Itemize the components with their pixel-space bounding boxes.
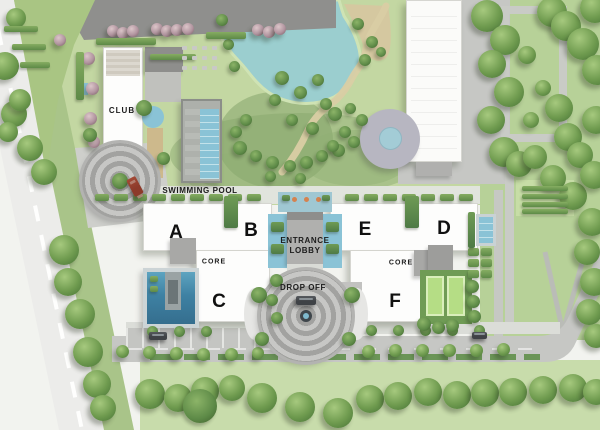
tower-b-label: B bbox=[244, 220, 258, 242]
car bbox=[296, 296, 316, 305]
vehicle-layer bbox=[0, 0, 600, 430]
tower-e-label: E bbox=[359, 219, 372, 241]
car-red bbox=[126, 176, 144, 197]
entrance-lobby-line1: ENTRANCE bbox=[280, 236, 329, 246]
tower-a-label: A bbox=[169, 222, 183, 244]
drop-off-label: DROP OFF bbox=[280, 283, 326, 293]
site-plan: CLUB SWIMMING POOL ENTRANCE LOBBY DROP O… bbox=[0, 0, 600, 430]
entrance-lobby-label: ENTRANCE LOBBY bbox=[280, 236, 329, 256]
entrance-lobby-line2: LOBBY bbox=[280, 246, 329, 256]
tower-c-label: C bbox=[212, 291, 226, 313]
tower-f-label: F bbox=[389, 291, 401, 313]
swimming-pool-label: SWIMMING POOL bbox=[162, 186, 237, 196]
car bbox=[472, 332, 487, 339]
core-west-label: CORE bbox=[202, 259, 226, 268]
car bbox=[149, 332, 167, 340]
club-label: CLUB bbox=[109, 106, 135, 116]
core-east-label: CORE bbox=[389, 260, 413, 269]
tower-d-label: D bbox=[437, 218, 451, 240]
